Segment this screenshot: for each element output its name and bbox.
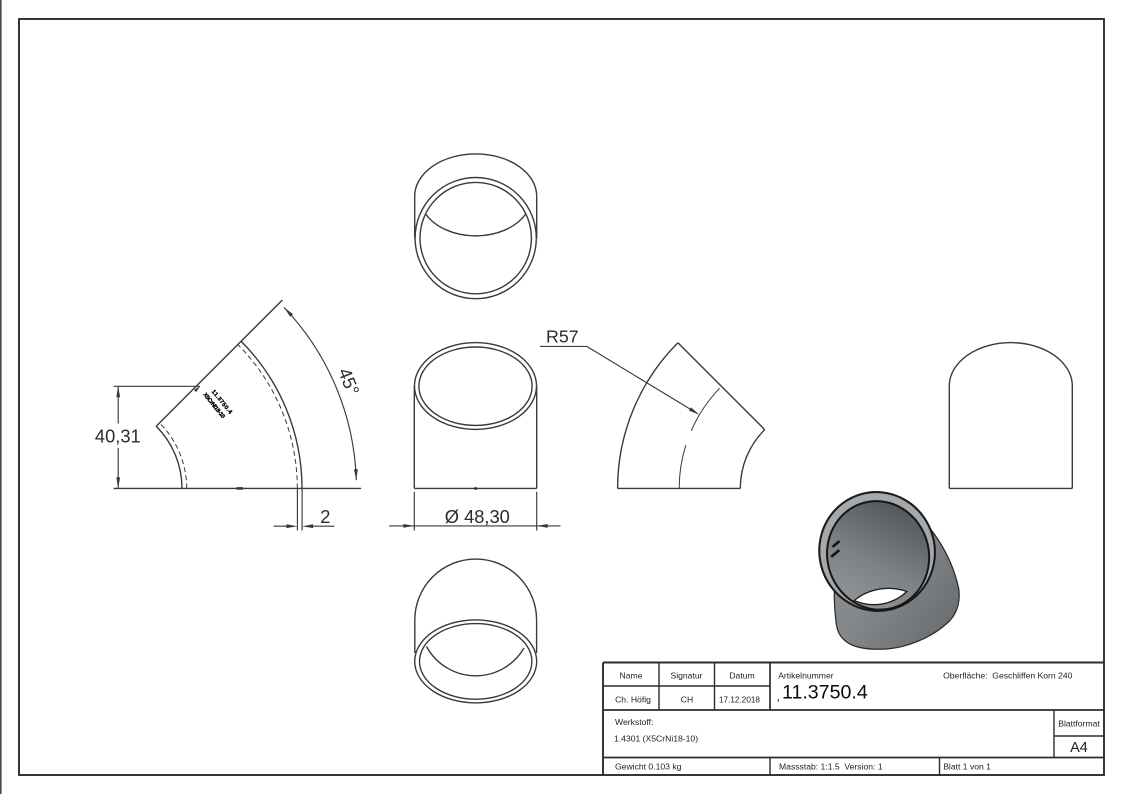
svg-text:Ø 48,30: Ø 48,30 — [445, 506, 510, 527]
svg-text:Blatt 1 von 1: Blatt 1 von 1 — [943, 762, 991, 772]
svg-text:Datum: Datum — [729, 671, 754, 681]
svg-text:Version: 1: Version: 1 — [844, 762, 882, 772]
svg-text:2: 2 — [320, 506, 330, 527]
svg-text:Signatur: Signatur — [670, 671, 702, 681]
svg-text:Gewicht 0.103 kg: Gewicht 0.103 kg — [615, 762, 682, 772]
svg-text:Ch. Höfig: Ch. Höfig — [615, 694, 651, 704]
svg-text:Oberfläche: Geschliffen Korn: Oberfläche: Geschliffen Korn 240 — [943, 671, 1073, 681]
svg-text:,: , — [777, 690, 780, 704]
svg-text:1.4301 (X5CrNi18-10): 1.4301 (X5CrNi18-10) — [614, 734, 698, 744]
svg-text:17.12.2018: 17.12.2018 — [719, 695, 760, 704]
svg-text:11.3750.4: 11.3750.4 — [782, 682, 868, 704]
svg-text:Artikelnummer: Artikelnummer — [778, 671, 834, 681]
svg-text:Massstab: 1:1.5: Massstab: 1:1.5 — [779, 762, 840, 772]
svg-text:Name: Name — [620, 671, 643, 681]
svg-text:40,31: 40,31 — [95, 426, 141, 447]
svg-text:R57: R57 — [546, 327, 579, 347]
svg-text:CH: CH — [681, 694, 693, 704]
svg-text:Blattformat: Blattformat — [1058, 719, 1100, 729]
svg-text:Werkstoff:: Werkstoff: — [615, 717, 653, 727]
svg-text:A4: A4 — [1070, 740, 1088, 756]
